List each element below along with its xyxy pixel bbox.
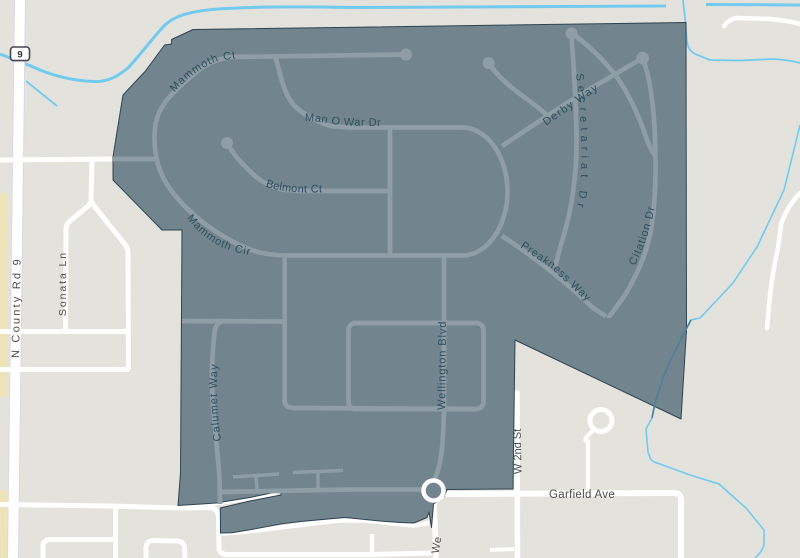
svg-text:Sonata Ln: Sonata Ln — [57, 251, 69, 316]
svg-text:Garfield Ave: Garfield Ave — [549, 489, 615, 501]
svg-text:N County Rd 9: N County Rd 9 — [10, 257, 24, 358]
svg-text:Wellington Blvd: Wellington Blvd — [436, 321, 449, 410]
svg-text:W 2nd St: W 2nd St — [512, 429, 525, 475]
svg-text:9: 9 — [17, 50, 22, 61]
